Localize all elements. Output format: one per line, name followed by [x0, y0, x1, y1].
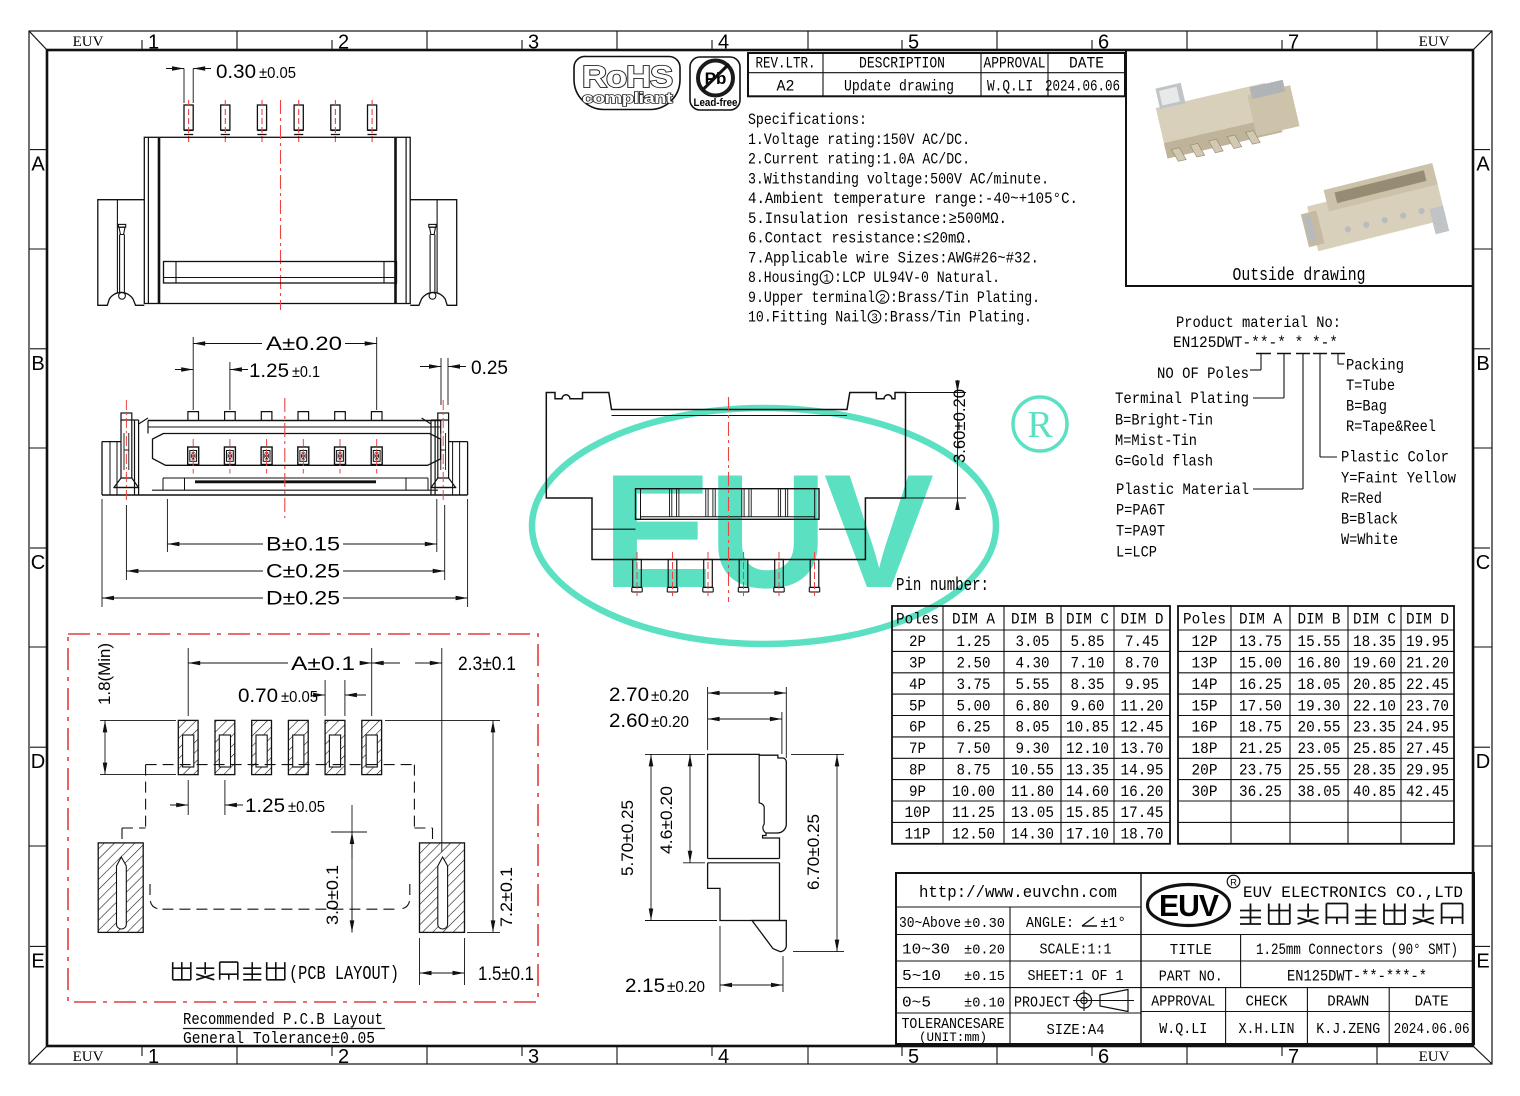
svg-text:4: 4	[718, 32, 729, 54]
svg-text:EUV ELECTRONICS CO.,LTD: EUV ELECTRONICS CO.,LTD	[1243, 884, 1463, 902]
svg-text:±0.20: ±0.20	[964, 943, 1005, 959]
svg-text:A: A	[31, 154, 45, 176]
svg-text:2: 2	[338, 1046, 349, 1068]
svg-text:12.45: 12.45	[1121, 719, 1164, 737]
svg-text:L=LCP: L=LCP	[1116, 544, 1157, 562]
svg-text:B: B	[1476, 353, 1489, 375]
svg-text:Y=Faint Yellow: Y=Faint Yellow	[1341, 470, 1456, 488]
svg-text:DIM C: DIM C	[1066, 611, 1109, 629]
svg-text:8P: 8P	[909, 762, 926, 780]
svg-text:CHECK: CHECK	[1246, 994, 1288, 1011]
svg-text:Plastic Color: Plastic Color	[1341, 449, 1449, 467]
svg-text:1: 1	[148, 32, 159, 54]
svg-text:9.95: 9.95	[1125, 676, 1159, 694]
svg-text:R: R	[1230, 878, 1237, 889]
svg-text:Poles: Poles	[896, 611, 939, 629]
svg-text:5.70±0.25: 5.70±0.25	[618, 800, 637, 876]
svg-text:G=Gold flash: G=Gold flash	[1115, 453, 1213, 471]
svg-text:11P: 11P	[905, 826, 931, 844]
svg-text:14.30: 14.30	[1011, 826, 1054, 844]
svg-text:DATE: DATE	[1069, 55, 1104, 73]
svg-text:1.Voltage rating:150V AC/DC.: 1.Voltage rating:150V AC/DC.	[748, 131, 970, 149]
svg-text:SCALE:1:1: SCALE:1:1	[1040, 942, 1112, 959]
svg-text:12P: 12P	[1192, 633, 1218, 651]
svg-text:3.Withstanding voltage:500V AC: 3.Withstanding voltage:500V AC/minute.	[748, 170, 1049, 188]
svg-text:E: E	[31, 950, 44, 972]
svg-text:16.25: 16.25	[1239, 676, 1282, 694]
svg-text:Terminal Plating: Terminal Plating	[1115, 390, 1249, 408]
svg-text:±0.30: ±0.30	[964, 916, 1005, 932]
svg-text:RoHS: RoHS	[582, 59, 672, 94]
svg-text:Pin number:: Pin number:	[896, 576, 989, 596]
svg-text:A±0.20: A±0.20	[266, 334, 342, 355]
svg-text:9.Upper terminal: 9.Upper terminal	[748, 289, 875, 307]
svg-text:13.05: 13.05	[1011, 804, 1054, 822]
svg-text:Recommended P.C.B Layout: Recommended P.C.B Layout	[183, 1011, 383, 1030]
svg-text:17.45: 17.45	[1121, 804, 1164, 822]
svg-text:21.25: 21.25	[1239, 740, 1282, 758]
svg-text:E: E	[1476, 950, 1489, 972]
svg-text:R=Red: R=Red	[1341, 490, 1382, 508]
svg-text:3.60±0.20: 3.60±0.20	[950, 389, 969, 463]
svg-text:W=White: W=White	[1341, 531, 1398, 549]
svg-text:T=Tube: T=Tube	[1346, 377, 1395, 395]
svg-text:1: 1	[148, 1046, 159, 1068]
svg-text:13.70: 13.70	[1121, 740, 1164, 758]
svg-text:18.75: 18.75	[1239, 719, 1282, 737]
svg-text:B±0.15: B±0.15	[266, 535, 340, 556]
svg-text:NO OF Poles: NO OF Poles	[1157, 365, 1249, 383]
svg-text:10.Fitting Nail: 10.Fitting Nail	[748, 309, 867, 327]
svg-text:SHEET:1 OF 1: SHEET:1 OF 1	[1028, 968, 1124, 985]
svg-text:2.70: 2.70	[609, 685, 649, 706]
svg-text:EUV: EUV	[1419, 34, 1450, 50]
svg-text:(UNIT:mm): (UNIT:mm)	[919, 1030, 987, 1045]
svg-text:6.70±0.25: 6.70±0.25	[804, 814, 823, 890]
svg-text:DESCRIPTION: DESCRIPTION	[859, 55, 945, 73]
svg-text:14P: 14P	[1192, 676, 1218, 694]
svg-text:3.0±0.1: 3.0±0.1	[323, 865, 342, 925]
svg-text:8.05: 8.05	[1016, 719, 1050, 737]
svg-text:±1°: ±1°	[1100, 915, 1126, 932]
svg-text:http://www.euvchn.com: http://www.euvchn.com	[919, 884, 1117, 903]
svg-text:12.50: 12.50	[952, 826, 995, 844]
svg-text:27.45: 27.45	[1406, 740, 1449, 758]
svg-text:5~10: 5~10	[902, 968, 941, 985]
svg-text:2.3±0.1: 2.3±0.1	[458, 654, 516, 675]
svg-text:0~5: 0~5	[902, 995, 931, 1012]
svg-text:6: 6	[1098, 32, 1109, 54]
svg-text:18.70: 18.70	[1121, 826, 1164, 844]
svg-text:8.75: 8.75	[957, 762, 991, 780]
svg-text:7.Applicable wire Sizes:AWG#26: 7.Applicable wire Sizes:AWG#26~#32.	[748, 249, 1039, 267]
svg-text:B=Bright-Tin: B=Bright-Tin	[1115, 412, 1213, 430]
svg-text:P=PA6T: P=PA6T	[1116, 502, 1165, 520]
svg-text:6.Contact resistance:≤20mΩ.: 6.Contact resistance:≤20mΩ.	[748, 230, 973, 248]
svg-text:C: C	[31, 552, 45, 574]
svg-text:29.95: 29.95	[1406, 762, 1449, 780]
svg-text:1.25: 1.25	[245, 796, 285, 817]
svg-text:30~Above: 30~Above	[899, 915, 961, 932]
svg-text:3.75: 3.75	[957, 676, 991, 694]
svg-text:8.35: 8.35	[1071, 676, 1105, 694]
svg-text:16.80: 16.80	[1298, 655, 1341, 673]
svg-text:Packing: Packing	[1346, 357, 1404, 375]
svg-text:4.Ambient temperature range:-4: 4.Ambient temperature range:-40~+105°C.	[748, 190, 1078, 208]
svg-text:TITLE: TITLE	[1170, 942, 1212, 959]
svg-text:5.55: 5.55	[1016, 676, 1050, 694]
svg-text:DIM B: DIM B	[1298, 611, 1341, 629]
svg-text:8.Housing: 8.Housing	[748, 269, 819, 287]
svg-text:±0.1: ±0.1	[292, 364, 320, 381]
svg-text:Plastic Material: Plastic Material	[1116, 481, 1249, 499]
svg-text:28.35: 28.35	[1353, 762, 1396, 780]
svg-text:A2: A2	[777, 78, 795, 96]
svg-text:13.35: 13.35	[1066, 762, 1109, 780]
svg-text:6.80: 6.80	[1016, 697, 1050, 715]
svg-text:16P: 16P	[1192, 719, 1218, 737]
svg-text:±0.05: ±0.05	[281, 689, 318, 706]
svg-text:A: A	[1476, 154, 1490, 176]
svg-text:18.35: 18.35	[1353, 633, 1396, 651]
svg-text:DRAWN: DRAWN	[1327, 994, 1369, 1011]
svg-text:B=Black: B=Black	[1341, 511, 1398, 529]
svg-text:19.30: 19.30	[1298, 697, 1341, 715]
svg-text:EUV: EUV	[73, 1049, 104, 1065]
svg-text:14.60: 14.60	[1066, 783, 1109, 801]
svg-text:7.10: 7.10	[1071, 655, 1105, 673]
svg-text:General Tolerance±0.05: General Tolerance±0.05	[183, 1030, 375, 1049]
svg-text:DIM A: DIM A	[952, 611, 995, 629]
svg-text:19.95: 19.95	[1406, 633, 1449, 651]
svg-text:7.45: 7.45	[1125, 633, 1159, 651]
svg-text:2.60: 2.60	[609, 711, 649, 732]
svg-text:4: 4	[718, 1046, 729, 1068]
svg-text:Specifications:: Specifications:	[748, 111, 867, 129]
svg-text:±0.05: ±0.05	[259, 65, 296, 82]
svg-text:DIM B: DIM B	[1011, 611, 1054, 629]
svg-text:D: D	[31, 751, 45, 773]
svg-text::Brass/Tin Plating.: :Brass/Tin Plating.	[890, 289, 1040, 307]
svg-text:R=Tape&Reel: R=Tape&Reel	[1346, 418, 1436, 436]
svg-text:6P: 6P	[909, 719, 926, 737]
svg-text:4P: 4P	[909, 676, 926, 694]
svg-text:R: R	[1027, 404, 1053, 446]
svg-text:13.75: 13.75	[1239, 633, 1282, 651]
svg-text:8.70: 8.70	[1125, 655, 1159, 673]
svg-text:4.30: 4.30	[1016, 655, 1050, 673]
svg-text:D±0.25: D±0.25	[266, 589, 340, 610]
svg-text:DIM A: DIM A	[1239, 611, 1282, 629]
svg-text:Outside drawing: Outside drawing	[1233, 266, 1366, 286]
svg-text:DATE: DATE	[1415, 994, 1449, 1011]
svg-text:SIZE:A4: SIZE:A4	[1047, 1022, 1105, 1039]
svg-text:42.45: 42.45	[1406, 783, 1449, 801]
svg-text:±0.20: ±0.20	[651, 688, 689, 705]
svg-text:1.25: 1.25	[957, 633, 991, 651]
svg-text:Poles: Poles	[1183, 611, 1226, 629]
svg-text:2024.06.06: 2024.06.06	[1045, 78, 1120, 96]
svg-text:9.30: 9.30	[1016, 740, 1050, 758]
svg-text:2: 2	[338, 32, 349, 54]
svg-text:12.10: 12.10	[1066, 740, 1109, 758]
svg-text:2.50: 2.50	[957, 655, 991, 673]
svg-text:3: 3	[528, 1046, 539, 1068]
svg-text:3: 3	[528, 32, 539, 54]
svg-text:5: 5	[908, 1046, 919, 1068]
svg-text:15P: 15P	[1192, 697, 1218, 715]
svg-text:6.25: 6.25	[957, 719, 991, 737]
svg-text:7.2±0.1: 7.2±0.1	[497, 867, 516, 927]
svg-text:10.00: 10.00	[952, 783, 995, 801]
svg-text:17.50: 17.50	[1239, 697, 1282, 715]
svg-text:±0.15: ±0.15	[964, 969, 1005, 985]
svg-text:±0.20: ±0.20	[667, 979, 705, 996]
svg-text:EN125DWT-**-***-*: EN125DWT-**-***-*	[1287, 968, 1427, 986]
svg-text:11.20: 11.20	[1121, 697, 1164, 715]
svg-text:18.05: 18.05	[1298, 676, 1341, 694]
svg-text:23.35: 23.35	[1353, 719, 1396, 737]
svg-text:10~30: 10~30	[902, 942, 950, 959]
svg-text:W.Q.LI: W.Q.LI	[987, 78, 1033, 96]
svg-text:3.05: 3.05	[1016, 633, 1050, 651]
svg-text:40.85: 40.85	[1353, 783, 1396, 801]
svg-text:EUV: EUV	[602, 441, 933, 622]
svg-text:X.H.LIN: X.H.LIN	[1239, 1021, 1295, 1038]
svg-text:11.80: 11.80	[1011, 783, 1054, 801]
svg-text:9P: 9P	[909, 783, 926, 801]
svg-text:20.85: 20.85	[1353, 676, 1396, 694]
svg-text:2.Current rating:1.0A AC/DC.: 2.Current rating:1.0A AC/DC.	[748, 151, 970, 169]
svg-text:25.55: 25.55	[1298, 762, 1341, 780]
svg-text:0.30: 0.30	[216, 62, 256, 83]
svg-text:ANGLE:: ANGLE:	[1026, 915, 1074, 932]
svg-text:23.05: 23.05	[1298, 740, 1341, 758]
svg-text:20P: 20P	[1192, 762, 1218, 780]
svg-text:D: D	[1476, 751, 1490, 773]
svg-text:11.25: 11.25	[952, 804, 995, 822]
svg-text:22.45: 22.45	[1406, 676, 1449, 694]
svg-text:5.Insulation resistance:≥500MΩ: 5.Insulation resistance:≥500MΩ.	[748, 210, 1007, 228]
svg-text:B: B	[31, 353, 44, 375]
svg-text:EN125DWT-**-* * *-*: EN125DWT-**-* * *-*	[1173, 334, 1338, 352]
svg-text:23.70: 23.70	[1406, 697, 1449, 715]
svg-text:7P: 7P	[909, 740, 926, 758]
svg-text:PART NO.: PART NO.	[1159, 969, 1223, 986]
svg-text:5: 5	[908, 32, 919, 54]
svg-text:A±0.1: A±0.1	[291, 654, 355, 675]
svg-text:2P: 2P	[909, 633, 926, 651]
svg-text:APPROVAL: APPROVAL	[984, 55, 1046, 73]
svg-text:10P: 10P	[905, 804, 931, 822]
svg-text:25.85: 25.85	[1353, 740, 1396, 758]
svg-text:4.6±0.20: 4.6±0.20	[657, 786, 676, 854]
svg-text:13P: 13P	[1192, 655, 1218, 673]
svg-text:21.20: 21.20	[1406, 655, 1449, 673]
svg-text:38.05: 38.05	[1298, 783, 1341, 801]
svg-text:18P: 18P	[1192, 740, 1218, 758]
svg-text:W.Q.LI: W.Q.LI	[1159, 1021, 1207, 1038]
svg-text:EUV: EUV	[1419, 1049, 1450, 1065]
svg-text:30P: 30P	[1192, 783, 1218, 801]
svg-text:C±0.25: C±0.25	[266, 562, 340, 583]
svg-text:7.50: 7.50	[957, 740, 991, 758]
svg-text:2: 2	[879, 294, 886, 306]
svg-text:EUV: EUV	[1159, 888, 1219, 923]
svg-text:5P: 5P	[909, 697, 926, 715]
svg-text:1.5±0.1: 1.5±0.1	[478, 964, 534, 985]
svg-text:17.10: 17.10	[1066, 826, 1109, 844]
svg-text:1.8(Min): 1.8(Min)	[95, 643, 114, 705]
svg-text:EUV: EUV	[73, 34, 104, 50]
svg-text:23.75: 23.75	[1239, 762, 1282, 780]
svg-text::LCP UL94V-0 Natural.: :LCP UL94V-0 Natural.	[834, 269, 1000, 287]
svg-text:7: 7	[1288, 32, 1299, 54]
svg-text:0.70: 0.70	[238, 686, 278, 707]
svg-text:K.J.ZENG: K.J.ZENG	[1316, 1021, 1380, 1038]
svg-text:6: 6	[1098, 1046, 1109, 1068]
svg-text:14.95: 14.95	[1121, 762, 1164, 780]
svg-text:22.10: 22.10	[1353, 697, 1396, 715]
svg-text:10.85: 10.85	[1066, 719, 1109, 737]
svg-text:9.60: 9.60	[1071, 697, 1105, 715]
svg-text:PROJECT: PROJECT	[1014, 995, 1070, 1012]
svg-text:24.95: 24.95	[1406, 719, 1449, 737]
svg-text:compliant: compliant	[582, 90, 673, 107]
svg-text:20.55: 20.55	[1298, 719, 1341, 737]
svg-text::Brass/Tin Plating.: :Brass/Tin Plating.	[882, 309, 1032, 327]
svg-text:7: 7	[1288, 1046, 1299, 1068]
svg-text:±0.10: ±0.10	[964, 996, 1005, 1012]
svg-text:DIM D: DIM D	[1406, 611, 1449, 629]
svg-text:15.55: 15.55	[1298, 633, 1341, 651]
svg-text:3: 3	[871, 313, 878, 325]
svg-text:±0.20: ±0.20	[651, 714, 689, 731]
svg-text:M=Mist-Tin: M=Mist-Tin	[1115, 432, 1197, 450]
svg-text:5.00: 5.00	[957, 697, 991, 715]
svg-text:C: C	[1476, 552, 1490, 574]
svg-text:Lead-free: Lead-free	[694, 97, 738, 109]
svg-text:DIM C: DIM C	[1353, 611, 1396, 629]
svg-text:±0.05: ±0.05	[288, 799, 325, 816]
svg-text:0.25: 0.25	[471, 358, 508, 379]
svg-text:Product material No:: Product material No:	[1176, 314, 1341, 332]
svg-text:APPROVAL: APPROVAL	[1151, 994, 1215, 1011]
svg-text:T=PA9T: T=PA9T	[1116, 523, 1165, 541]
svg-text:Update drawing: Update drawing	[844, 78, 954, 96]
svg-text:2024.06.06: 2024.06.06	[1394, 1021, 1470, 1038]
svg-text:5.85: 5.85	[1071, 633, 1105, 651]
svg-text:3P: 3P	[909, 655, 926, 673]
svg-text:1: 1	[823, 274, 830, 286]
svg-text:(PCB LAYOUT): (PCB LAYOUT)	[289, 963, 399, 985]
svg-text:REV.LTR.: REV.LTR.	[756, 55, 816, 73]
svg-text:1.25mm Connectors (90° SMT): 1.25mm Connectors (90° SMT)	[1256, 941, 1458, 959]
svg-text:15.85: 15.85	[1066, 804, 1109, 822]
svg-text:B=Bag: B=Bag	[1346, 398, 1387, 416]
svg-text:16.20: 16.20	[1121, 783, 1164, 801]
svg-text:36.25: 36.25	[1239, 783, 1282, 801]
svg-text:10.55: 10.55	[1011, 762, 1054, 780]
svg-text:DIM D: DIM D	[1121, 611, 1164, 629]
svg-text:15.00: 15.00	[1239, 655, 1282, 673]
svg-text:1.25: 1.25	[249, 361, 289, 382]
svg-text:19.60: 19.60	[1353, 655, 1396, 673]
svg-text:2.15: 2.15	[625, 976, 665, 997]
